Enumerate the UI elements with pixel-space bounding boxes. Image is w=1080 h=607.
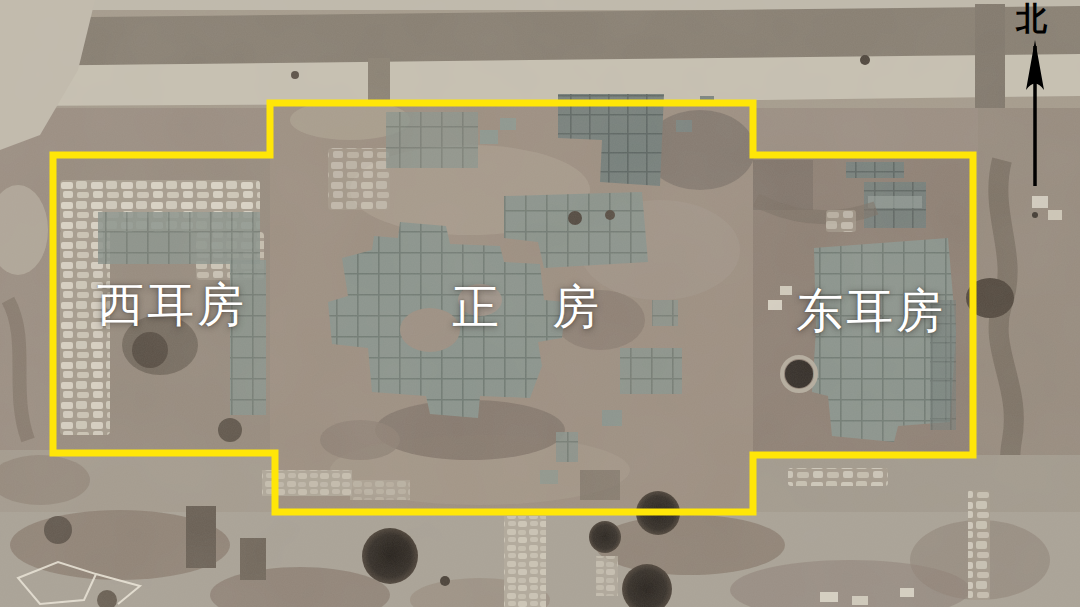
label-main-room: 正 房 [452,283,602,330]
label-east-ear-room: 东耳房 [796,287,946,334]
label-west-ear-room: 西耳房 [97,281,247,328]
excavation-aerial-photo: 西耳房 正 房 东耳房 北 [0,0,1080,607]
north-label: 北 [1016,3,1047,34]
